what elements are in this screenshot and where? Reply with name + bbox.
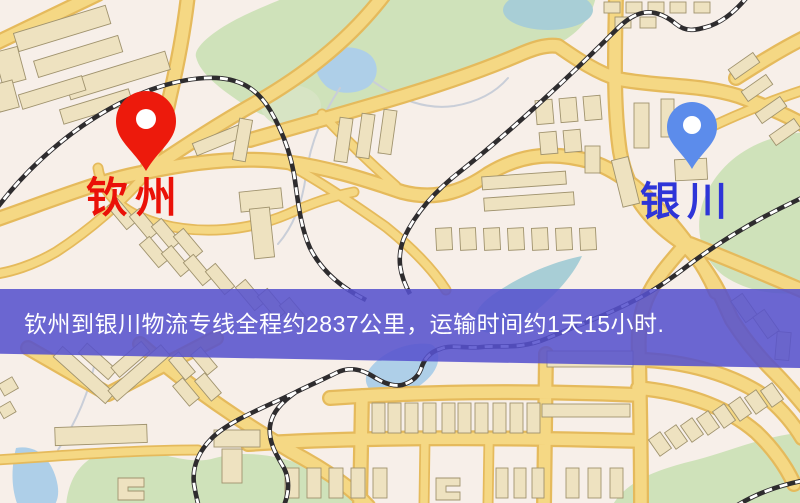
map-canvas	[0, 0, 800, 503]
route-summary-text: 钦州到银川物流专线全程约2837公里，运输时间约1天15小时.	[24, 305, 664, 339]
map-screenshot: 钦州 银川 钦州到银川物流专线全程约2837公里，运输时间约1天15小时.	[0, 0, 800, 503]
qinzhou-label: 钦州	[86, 177, 184, 219]
yinchuan-label: 银川	[640, 182, 734, 222]
